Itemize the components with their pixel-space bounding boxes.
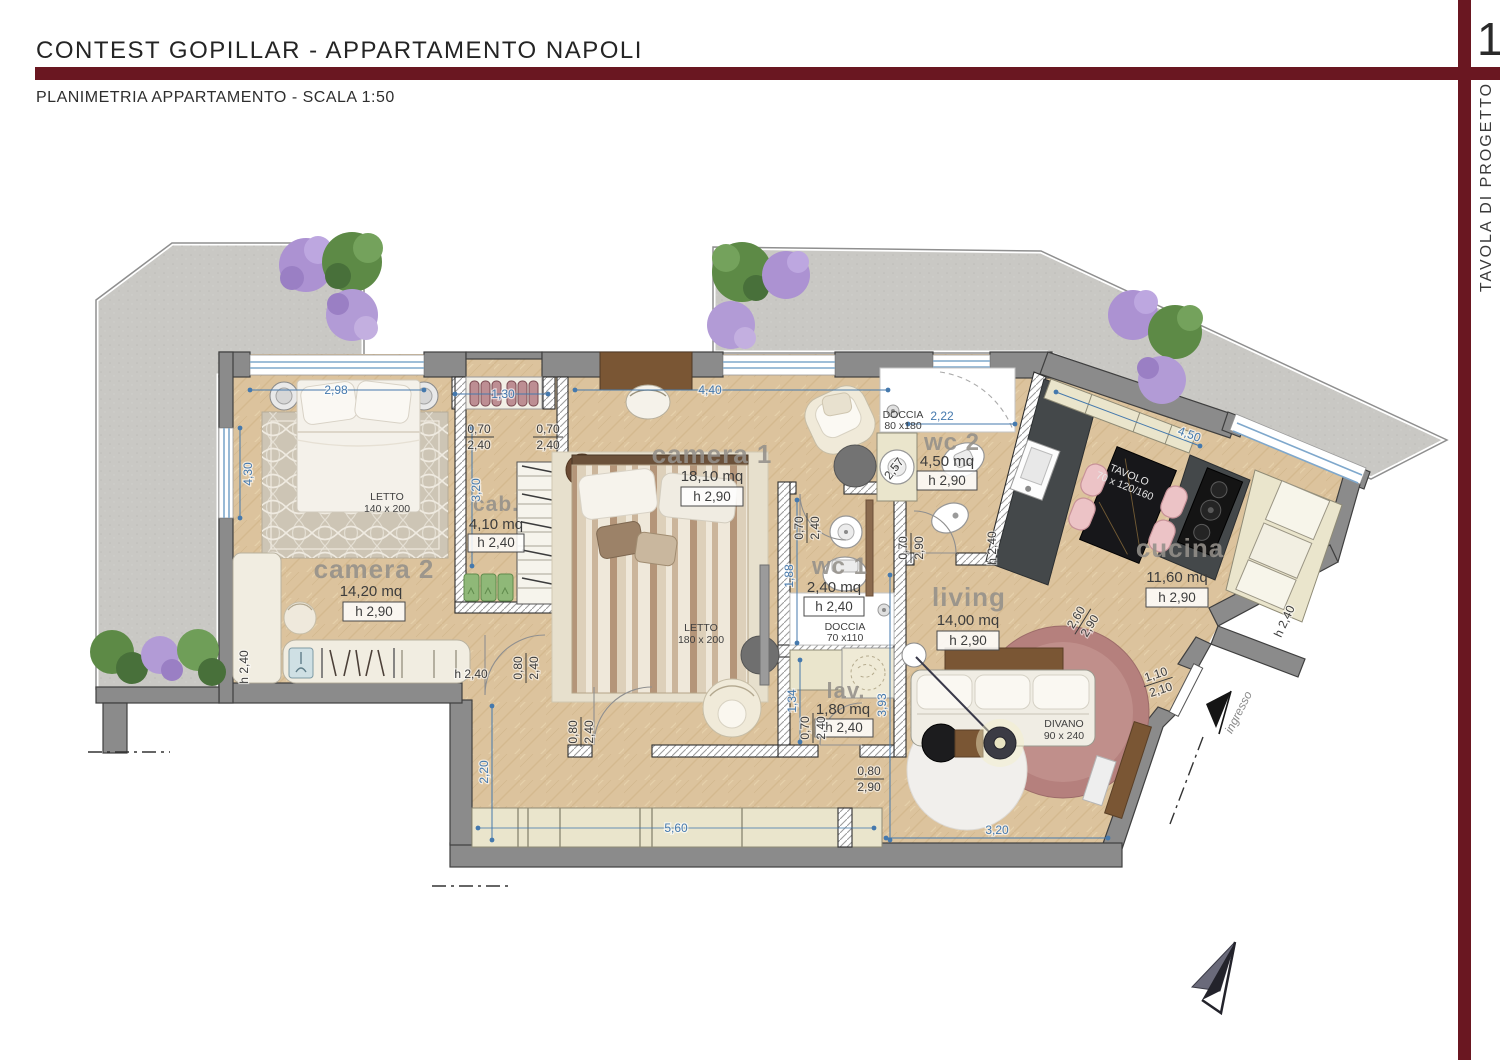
svg-text:2,40: 2,40 (582, 720, 596, 744)
console-table (945, 648, 1063, 671)
pouf-camera1-top (834, 445, 876, 487)
svg-text:14,00 mq: 14,00 mq (937, 612, 1000, 629)
svg-text:h 2,90: h 2,90 (1158, 590, 1196, 605)
floor-plan-sheet: camera 2 14,20 mq h 2,90 cab. 4,10 mq h … (0, 0, 1500, 1060)
svg-text:1,80 mq: 1,80 mq (816, 701, 870, 718)
room-label-wc2: wc 2 4,50 mq h 2,90 (917, 429, 980, 490)
label-letto-camera1: LETTO 180 x 200 (678, 622, 724, 646)
accent-bar-horizontal (35, 67, 1500, 80)
svg-text:2,40: 2,40 (808, 516, 822, 540)
svg-text:70 x110: 70 x110 (827, 632, 864, 644)
chair-camera2 (284, 602, 316, 634)
window-camera2-left (219, 428, 233, 518)
label-h-kitchen-door: h 2,40 (985, 531, 999, 565)
svg-text:4,30: 4,30 (241, 462, 255, 486)
side-table-black (922, 724, 960, 762)
svg-text:1,34: 1,34 (785, 689, 799, 713)
dim-window-camera2-left: 4,30 (241, 462, 255, 486)
svg-text:h 2,40: h 2,40 (477, 535, 515, 550)
sliding-panel (760, 565, 769, 685)
svg-text:0,70: 0,70 (467, 422, 491, 436)
svg-text:h 2,90: h 2,90 (693, 489, 731, 504)
svg-text:wc 1: wc 1 (811, 553, 868, 580)
label-h-camera2-desk: h 2,40 (454, 667, 488, 681)
svg-text:11,60 mq: 11,60 mq (1146, 569, 1207, 586)
sheet-subtitle: PLANIMETRIA APPARTAMENTO - SCALA 1:50 (36, 89, 395, 106)
dim-window-camera1: 4,40 (698, 383, 722, 397)
svg-text:wc 2: wc 2 (923, 429, 980, 456)
svg-text:180 x 200: 180 x 200 (678, 634, 724, 646)
svg-text:2,40: 2,40 (527, 656, 541, 680)
svg-text:80 x180: 80 x180 (884, 420, 922, 432)
svg-text:4,10 mq: 4,10 mq (469, 516, 523, 533)
svg-text:cucina: cucina (1136, 533, 1224, 563)
dim-door-living: 0,702,90 (896, 533, 926, 563)
towel-rail (866, 500, 873, 596)
svg-text:18,10 mq: 18,10 mq (681, 468, 744, 485)
dim-door-lav: 0,702,40 (798, 713, 828, 743)
accent-bar-vertical (1458, 0, 1471, 1060)
svg-text:2,40 mq: 2,40 mq (807, 579, 861, 596)
window-camera2-top (250, 355, 424, 375)
dim-door-cab-2: 0,702,40 (533, 422, 563, 452)
sheet-number: 1 (1477, 13, 1500, 65)
svg-text:140 x 200: 140 x 200 (364, 503, 410, 515)
room-label-wc1: wc 1 2,40 mq h 2,40 (804, 553, 868, 616)
label-h-left-wall: h 2,40 (237, 650, 251, 684)
svg-text:2,90: 2,90 (857, 780, 881, 794)
label-divano: DIVANO 90 x 240 (1044, 718, 1084, 742)
svg-text:LETTO: LETTO (370, 491, 404, 503)
svg-text:living: living (932, 582, 1006, 612)
entrance-annotation: ingresso (1206, 689, 1255, 736)
label-letto-camera2: LETTO 140 x 200 (364, 491, 410, 515)
svg-text:3,93: 3,93 (875, 693, 889, 717)
svg-text:h 2,40: h 2,40 (985, 531, 999, 565)
svg-text:0,70: 0,70 (798, 716, 812, 740)
dim-wc1-length: 1,88 (782, 564, 796, 588)
svg-text:h 2,90: h 2,90 (949, 633, 987, 648)
svg-text:0,70: 0,70 (896, 536, 910, 560)
svg-text:2,90: 2,90 (912, 536, 926, 560)
desk-camera2 (283, 640, 470, 683)
dim-lav-length: 1,34 (785, 689, 799, 713)
svg-text:3,20: 3,20 (469, 478, 483, 502)
room-label-living: living 14,00 mq h 2,90 (932, 582, 1006, 650)
svg-text:0,80: 0,80 (511, 656, 525, 680)
dim-closet-bottom: 5,60 (664, 821, 688, 835)
svg-text:2,40: 2,40 (814, 716, 828, 740)
svg-text:lav.: lav. (826, 678, 865, 703)
dim-door-camera2: 0,802,40 (511, 653, 541, 683)
svg-text:2,40: 2,40 (467, 438, 491, 452)
label-doccia-wc1: DOCCIA 70 x110 (825, 621, 866, 644)
dim-living-bottom: 3,20 (985, 823, 1009, 837)
svg-text:h 2,90: h 2,90 (355, 604, 393, 619)
dim-wc2-width: 2,22 (930, 409, 954, 423)
svg-text:90 x 240: 90 x 240 (1044, 730, 1084, 742)
armchair-camera1-bottom (703, 679, 761, 737)
wardrobe-cab (517, 462, 557, 604)
svg-text:LETTO: LETTO (684, 622, 718, 634)
dim-window-camera2: 2,98 (324, 383, 348, 397)
dim-living-side: 3,93 (875, 693, 889, 717)
svg-text:1,88: 1,88 (782, 564, 796, 588)
north-arrow (1192, 942, 1235, 1013)
svg-text:0,70: 0,70 (792, 516, 806, 540)
window-camera1-top (723, 355, 835, 375)
sheet-category: TAVOLA DI PROGETTO (1478, 82, 1495, 292)
dim-closet-cab: 1,30 (491, 387, 515, 401)
svg-text:14,20 mq: 14,20 mq (340, 583, 403, 600)
dim-door-wc1: 0,702,40 (792, 513, 822, 543)
svg-text:2,40: 2,40 (536, 438, 560, 452)
svg-text:0,70: 0,70 (536, 422, 560, 436)
storage-boxes-icon (464, 574, 513, 601)
svg-text:h 2,40: h 2,40 (815, 599, 853, 614)
svg-text:camera 1: camera 1 (652, 439, 773, 469)
label-doccia-wc2: DOCCIA 80 x180 (883, 409, 924, 432)
dim-door-cab-1: 0,702,40 (464, 422, 494, 452)
svg-text:h 2,40: h 2,40 (825, 720, 863, 735)
svg-text:0,80: 0,80 (857, 764, 881, 778)
svg-text:camera 2: camera 2 (314, 554, 435, 584)
svg-text:h 2,90: h 2,90 (928, 473, 966, 488)
dim-corridor: 2,20 (477, 760, 491, 784)
svg-text:2,20: 2,20 (477, 760, 491, 784)
svg-text:DIVANO: DIVANO (1044, 718, 1083, 730)
dim-door-camera1: 0,802,40 (566, 717, 596, 747)
svg-text:0,80: 0,80 (566, 720, 580, 744)
sheet-title: CONTEST GOPILLAR - APPARTAMENTO NAPOLI (36, 37, 643, 64)
desk-camera1 (600, 352, 692, 390)
svg-text:4,50 mq: 4,50 mq (920, 453, 974, 470)
dim-door-corridor: 0,802,90 (854, 764, 884, 794)
svg-text:h 2,40: h 2,40 (237, 650, 251, 684)
dim-cab-depth: 3,20 (469, 478, 483, 502)
